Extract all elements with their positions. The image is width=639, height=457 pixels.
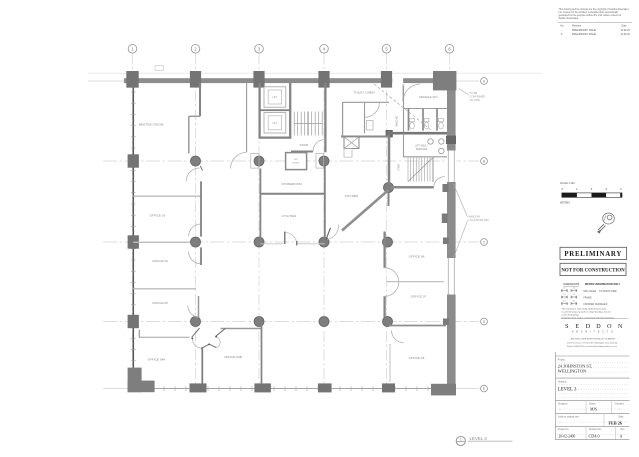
svg-text:MJS: MJS [590, 408, 597, 412]
svg-text:TO BE: TO BE [470, 91, 478, 95]
svg-text:MEETING ROOM: MEETING ROOM [139, 123, 164, 127]
svg-text:-: - [619, 408, 620, 412]
svg-text:ON SITE: ON SITE [470, 98, 481, 102]
svg-text:ST STRUCTURE: ST STRUCTURE [599, 291, 617, 293]
svg-text:1.0: 1.0 [563, 301, 565, 303]
svg-text:FINISHED SURFACES: FINISHED SURFACES [584, 303, 608, 306]
svg-text:OFFICE 08: OFFICE 08 [409, 255, 425, 259]
svg-text:Project: Project [558, 358, 566, 361]
svg-text:CONFIRMED: CONFIRMED [470, 95, 486, 99]
svg-text:OFFICE 04: OFFICE 04 [152, 259, 168, 263]
svg-text:DRY: DRY [294, 159, 299, 161]
svg-text:Scale at original size: Scale at original size [558, 415, 580, 418]
svg-text:Revision: Revision [572, 24, 582, 27]
svg-text:1.0: 1.0 [573, 288, 575, 290]
svg-text:SCALE 1:100: SCALE 1:100 [560, 182, 575, 185]
svg-text:Project No.: Project No. [558, 428, 570, 431]
svg-text:RISER: RISER [293, 162, 300, 164]
svg-text:ARCHITECTURE INTERIORS ADU: ARCHITECTURE INTERIORS ADULT PLANNING [571, 338, 616, 341]
svg-text:UTILITIES: UTILITIES [282, 214, 296, 218]
svg-text:NOT FOR CONSTRUCTION: NOT FOR CONSTRUCTION [561, 268, 625, 273]
svg-text:KITCHEN: KITCHEN [345, 194, 359, 198]
svg-text:Date: Date [622, 24, 628, 27]
svg-text:PRELIMINARY ISSUE: PRELIMINARY ISSUE [572, 29, 596, 32]
svg-text:Rev.: Rev. [621, 429, 626, 431]
svg-text:STOREROOM: STOREROOM [281, 182, 302, 186]
svg-text:OFFICE 06: OFFICE 06 [409, 356, 425, 360]
svg-text:Seddon Associates.: Seddon Associates. [559, 17, 580, 20]
svg-text:No.: No. [561, 24, 565, 27]
svg-text:12.02.20: 12.02.20 [621, 29, 631, 32]
svg-text:O: O [607, 324, 612, 330]
svg-text:OFFICE 03: OFFICE 03 [150, 214, 166, 218]
svg-text:Drawn: Drawn [589, 402, 596, 405]
svg-text:A: A [620, 434, 623, 439]
svg-text:CD4.0: CD4.0 [589, 434, 600, 439]
svg-text:Date: Date [619, 415, 625, 418]
svg-text:MALE WC: MALE WC [396, 115, 399, 126]
svg-text:2/11 The Terrace, PO Box 887,: 2/11 The Terrace, PO Box 887, Wellington… [567, 342, 617, 345]
svg-text:LOCATIONS TBC: LOCATIONS TBC [469, 218, 490, 222]
svg-text:STAIR: STAIR [299, 143, 309, 147]
svg-text:METRES: METRES [560, 201, 570, 204]
svg-text:PRELIMINARY: PRELIMINARY [564, 251, 622, 258]
svg-text:N: N [618, 324, 623, 330]
svg-text:FRAME: FRAME [584, 297, 593, 300]
svg-text:OFFICE 07: OFFICE 07 [411, 295, 427, 299]
svg-text:1.0: 1.0 [573, 301, 575, 303]
svg-text:Drawing: Drawing [558, 381, 567, 384]
svg-text:1: 1 [460, 438, 462, 442]
svg-text:METRIC INFORMATION ONLY: METRIC INFORMATION ONLY [585, 283, 620, 286]
svg-text:-: - [560, 420, 561, 424]
svg-text:generated but the purpose with: generated but the purpose without the pr… [559, 14, 622, 17]
svg-text:FEB 26: FEB 26 [609, 420, 622, 425]
svg-text:1.0: 1.0 [563, 294, 565, 296]
svg-text:ARCHITECTS: ARCHITECTS [572, 330, 616, 333]
svg-text:to commencing any work or shop: to commencing any work or shop drawings.… [562, 310, 612, 313]
svg-text:Ltd. Consent of the architect: Ltd. Consent of the architect is identif… [559, 11, 620, 14]
svg-text:LIFT: LIFT [272, 96, 277, 99]
svg-text:E: E [575, 324, 579, 330]
svg-text:D: D [586, 324, 591, 330]
svg-text:14.02.20: 14.02.20 [621, 33, 631, 36]
svg-text:Checked: Checked [615, 403, 625, 405]
svg-text:OFFICE 04B: OFFICE 04B [224, 355, 242, 359]
svg-text:1.0: 1.0 [563, 288, 565, 290]
svg-text:WINDOW: WINDOW [469, 215, 481, 219]
svg-text:The Contractor shall verify al: The Contractor shall verify all dimensio… [562, 307, 607, 310]
svg-text:LIFT: LIFT [272, 122, 277, 125]
svg-text:WELLINGTON: WELLINGTON [558, 369, 586, 374]
svg-text:MIN CLEAR: MIN CLEAR [584, 290, 597, 293]
svg-text:LIFT WELL /: LIFT WELL / [415, 146, 428, 148]
svg-text:20-02-2400: 20-02-2400 [559, 434, 576, 438]
svg-text:TOILET LOBBY: TOILET LOBBY [354, 91, 376, 95]
svg-text:DIMENSIONS: DIMENSIONS [564, 283, 580, 286]
svg-text:LEVEL 3: LEVEL 3 [470, 436, 488, 441]
svg-text:Designed: Designed [558, 403, 568, 405]
svg-text:OFFICE 05: OFFICE 05 [152, 301, 168, 305]
svg-text:Drawing No.: Drawing No. [589, 428, 602, 431]
svg-text:scale off drawings.: scale off drawings. [562, 313, 580, 316]
svg-text:1.0: 1.0 [573, 294, 575, 296]
svg-text:SERVICES: SERVICES [416, 149, 428, 151]
svg-text:PRELIMINARY ISSUE: PRELIMINARY ISSUE [572, 33, 596, 36]
svg-text:D: D [596, 324, 601, 330]
svg-text:STAIR: STAIR [398, 164, 401, 171]
svg-text:Phone 04 384 0100 e-mail mai: Phone 04 384 0100 e-mail mail@seddonarch… [567, 345, 617, 348]
svg-text:LEVEL 3: LEVEL 3 [558, 387, 577, 392]
svg-text:OFFICE 04A: OFFICE 04A [148, 358, 167, 362]
svg-text:-: - [560, 408, 561, 412]
svg-text:This drawing and its contents: This drawing and its contents are the co… [559, 8, 630, 11]
svg-text:FEMALE WC: FEMALE WC [419, 95, 438, 99]
